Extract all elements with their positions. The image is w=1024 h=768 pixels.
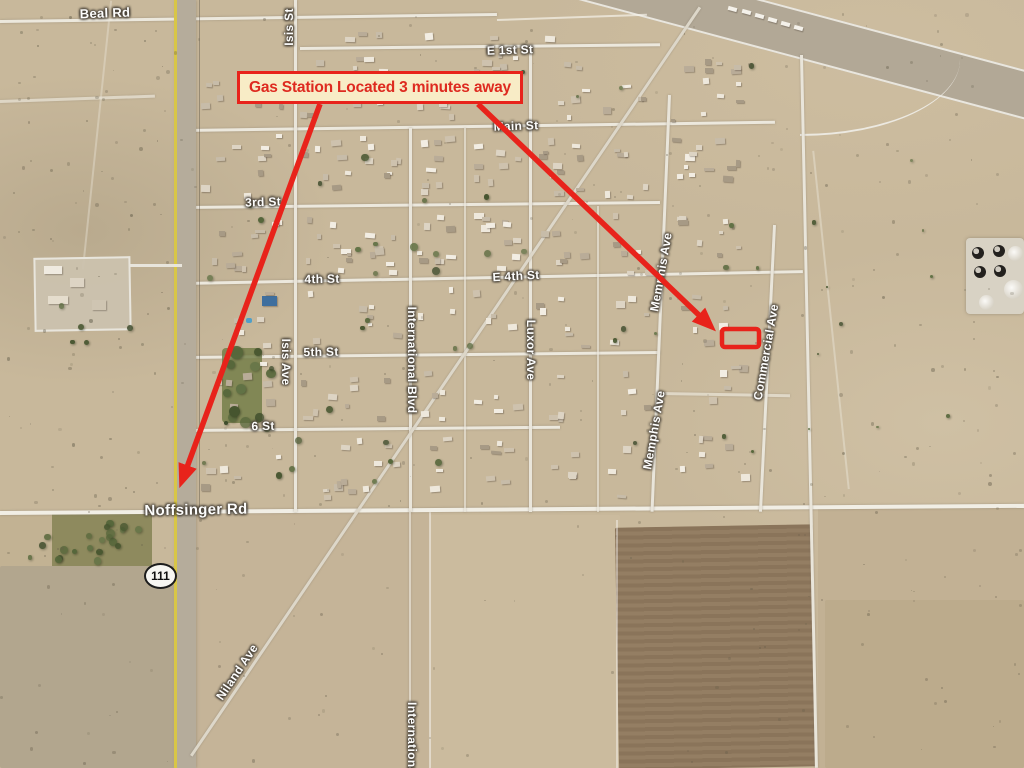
street-label-beal-rd: Beal Rd	[79, 5, 130, 22]
street-label-isis-st: Isis St	[282, 8, 296, 45]
satellite-map: Beal Rd Isis St E 1st St Main St 3rd St …	[0, 0, 1024, 768]
gas-station-callout: Gas Station Located 3 minutes away	[237, 71, 523, 104]
street-label-memphis-ave-south: Memphis Ave	[640, 390, 668, 471]
street-label-4th-st: 4th St	[304, 272, 339, 287]
street-label-noffsinger-rd: Noffsinger Rd	[144, 501, 247, 520]
street-label-6-st: 6 St	[251, 419, 274, 433]
street-label-main-st: Main St	[493, 118, 538, 134]
highway-number: 111	[151, 569, 170, 583]
street-label-niland-ave: Niland Ave	[213, 642, 260, 703]
street-label-3rd-st: 3rd St	[245, 194, 281, 209]
street-label-international-south: International	[405, 702, 419, 768]
street-label-isis-ave: Isis Ave	[279, 339, 293, 386]
street-label-memphis-ave-north: Memphis Ave	[647, 232, 675, 313]
street-label-5th-st: 5th St	[303, 345, 338, 360]
highway-111-shield: 111	[144, 563, 177, 589]
street-label-e-4th-st: E 4th St	[492, 268, 540, 284]
street-label-e-1st-st: E 1st St	[487, 42, 534, 58]
street-label-luxor-ave: Luxor Ave	[524, 320, 538, 381]
street-label-commercial-ave: Commercial Ave	[751, 303, 782, 401]
street-label-international-blvd: International Blvd	[405, 307, 419, 414]
